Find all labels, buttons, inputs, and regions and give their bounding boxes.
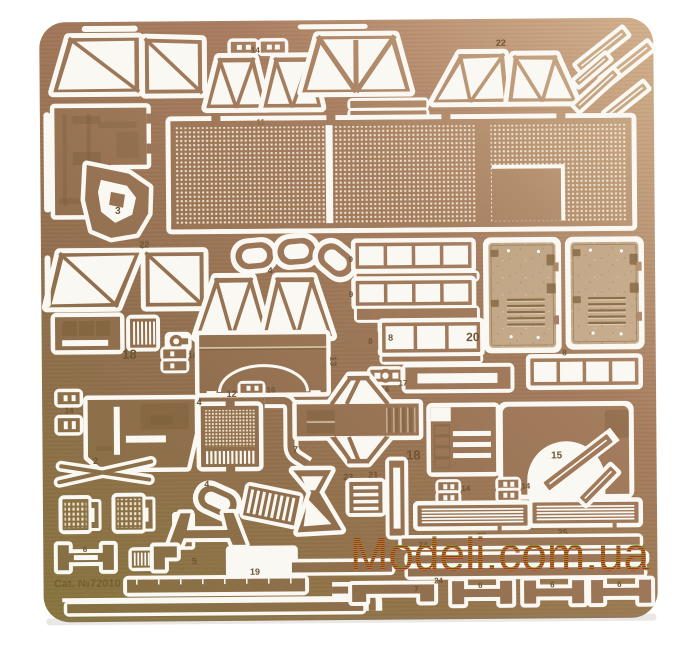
svg-text:14: 14	[251, 46, 261, 55]
svg-text:7: 7	[414, 584, 419, 593]
svg-text:9: 9	[349, 290, 354, 299]
svg-text:6: 6	[83, 545, 88, 554]
svg-text:4: 4	[204, 479, 209, 489]
svg-text:22: 22	[496, 38, 506, 48]
svg-text:2: 2	[93, 456, 98, 466]
svg-text:4: 4	[268, 266, 273, 276]
svg-text:8: 8	[388, 333, 393, 343]
svg-text:8: 8	[562, 348, 567, 357]
svg-text:3: 3	[115, 206, 121, 217]
svg-text:Modeli.com.ua: Modeli.com.ua	[350, 528, 650, 580]
svg-text:20: 20	[466, 330, 480, 344]
svg-text:14: 14	[65, 406, 75, 415]
svg-text:19: 19	[250, 567, 260, 577]
svg-text:14: 14	[521, 482, 531, 491]
svg-text:5: 5	[192, 556, 197, 566]
svg-text:18: 18	[122, 347, 137, 362]
svg-text:8: 8	[368, 337, 373, 346]
svg-text:13: 13	[328, 356, 338, 366]
svg-text:11: 11	[256, 118, 265, 127]
svg-text:15: 15	[551, 450, 563, 461]
svg-text:4: 4	[197, 397, 202, 407]
svg-text:6: 6	[478, 581, 483, 590]
svg-text:7: 7	[293, 444, 298, 454]
svg-text:18: 18	[406, 447, 421, 462]
svg-text:9: 9	[348, 255, 353, 264]
svg-text:6: 6	[617, 580, 622, 589]
svg-text:22: 22	[139, 240, 149, 250]
svg-text:14: 14	[461, 484, 471, 493]
svg-text:17: 17	[398, 379, 408, 388]
svg-text:6: 6	[550, 580, 555, 589]
svg-text:Cat. №72010: Cat. №72010	[54, 578, 121, 591]
svg-text:12: 12	[227, 389, 237, 399]
